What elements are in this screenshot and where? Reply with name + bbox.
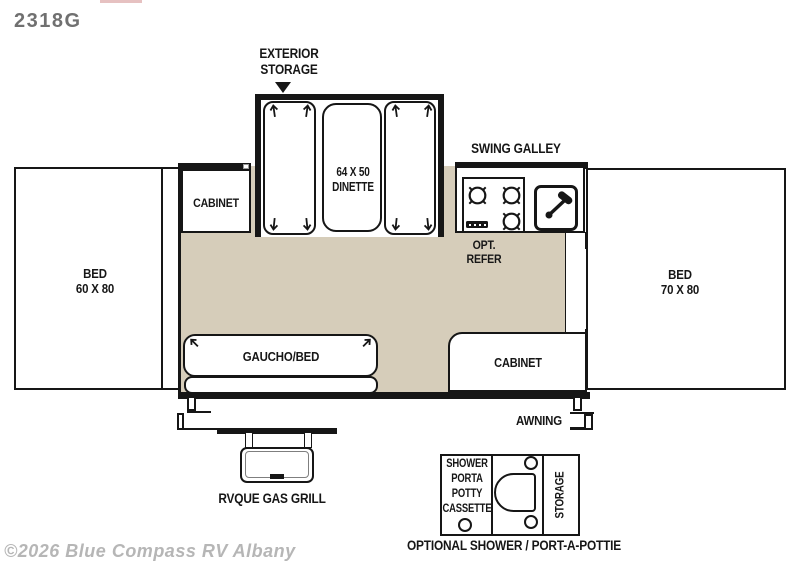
gas-grill-body — [240, 447, 314, 483]
potty-divider — [542, 455, 544, 535]
knob-dot — [469, 224, 471, 226]
left-bed-fold-line — [161, 169, 163, 388]
knob-dot — [474, 224, 476, 226]
awning-label: AWNING — [516, 414, 562, 429]
top-accent-sliver — [100, 0, 142, 3]
grill-arm — [304, 433, 312, 448]
dinette-label: 64 X 50 DINETTE — [332, 165, 374, 195]
knob-dot — [479, 224, 481, 226]
left-bed-label: BED 60 X 80 — [76, 266, 114, 296]
knob-dot — [484, 224, 486, 226]
potty-text: SHOWER PORTA POTTY CASSETTE — [443, 457, 492, 517]
burner-icon — [499, 183, 524, 208]
vent-circle — [524, 456, 538, 470]
slide-arrow-icon — [268, 102, 280, 118]
model-label: 2318G — [14, 10, 82, 33]
burner-icon — [465, 183, 490, 208]
watermark: ©2026 Blue Compass RV Albany — [4, 541, 296, 562]
bottom-wall — [178, 392, 590, 399]
faucet-icon — [537, 188, 575, 228]
bracket-rail — [570, 427, 586, 430]
slide-arrow-icon — [422, 102, 434, 118]
grill-arm — [245, 433, 253, 448]
grill-mount-bar — [217, 428, 337, 434]
slide-arrow-icon — [268, 217, 280, 233]
jack-rail — [180, 428, 218, 431]
gaucho-label: GAUCHO/BED — [243, 350, 319, 365]
right-counter-strip — [565, 233, 585, 332]
slide-arrow-icon — [301, 102, 313, 118]
cabinet-bottom-label: CABINET — [494, 356, 542, 370]
bracket-leg — [573, 398, 582, 411]
dinette-bench-right — [384, 101, 436, 235]
slide-arrow-icon — [390, 102, 402, 118]
galley-sink — [534, 185, 578, 231]
right-bed-label: BED 70 X 80 — [661, 267, 699, 297]
grill-label: RVQUE GAS GRILL — [218, 491, 325, 507]
vent-circle — [524, 515, 538, 529]
storage-pointer-icon — [275, 82, 291, 93]
storage-compartment-label: STORAGE — [554, 472, 567, 519]
slide-arrow-icon — [301, 217, 313, 233]
exterior-storage-label: EXTERIOR STORAGE — [259, 46, 318, 78]
stove-control-panel — [466, 221, 488, 228]
slide-arrow-icon — [390, 217, 402, 233]
swing-galley-label: SWING GALLEY — [471, 141, 561, 157]
dinette-bench-left — [263, 101, 316, 235]
slide-arrow-icon — [422, 217, 434, 233]
toilet-icon — [494, 473, 536, 512]
jack-step — [187, 411, 211, 414]
jack-leg — [187, 398, 196, 411]
cabinet-top-label: CABINET — [193, 197, 239, 211]
cassette-circle — [458, 518, 472, 532]
grill-handle — [270, 474, 284, 479]
optional-caption: OPTIONAL SHOWER / PORT-A-POTTIE — [407, 538, 621, 554]
opt-refer-label: OPT. REFER — [467, 238, 502, 266]
floorplan-stage: 2318G BED 60 X 80 BED 70 X 80 CABINET 64… — [0, 0, 800, 568]
burner-icon — [499, 209, 524, 234]
